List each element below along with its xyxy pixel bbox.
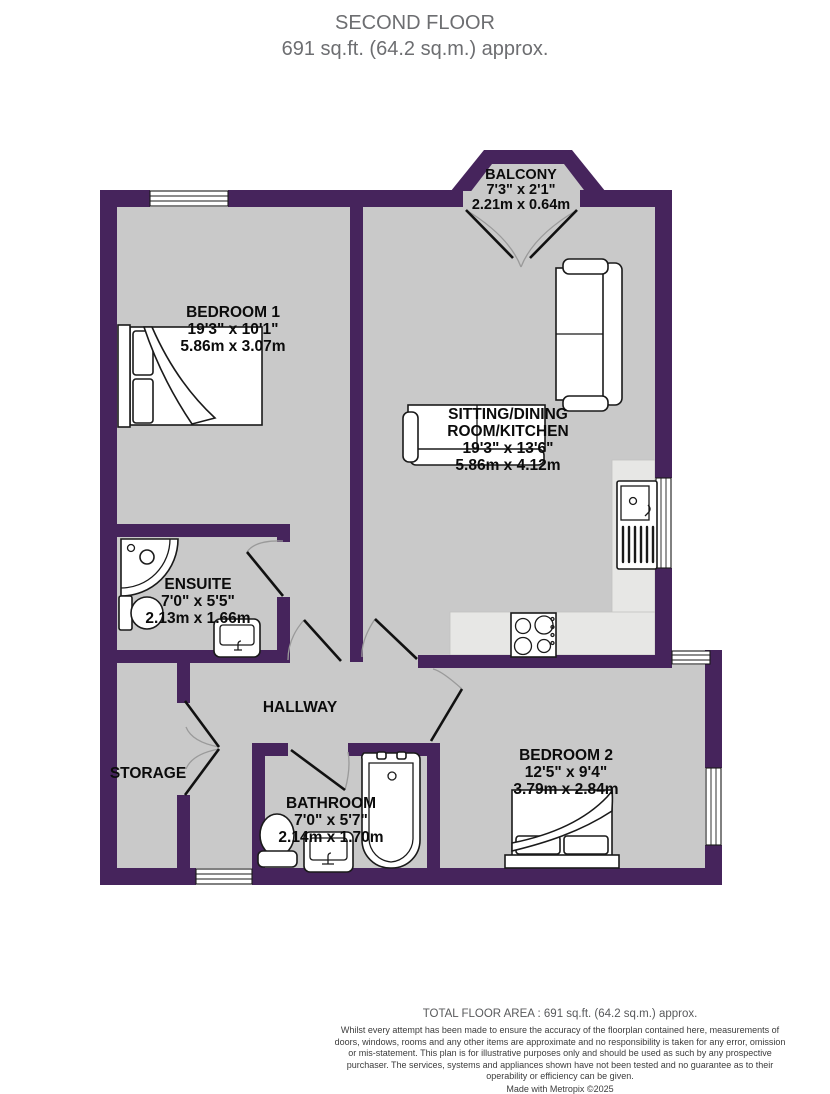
storage-label: STORAGE (110, 765, 186, 782)
hob-icon (511, 613, 556, 657)
ensuite-name: ENSUITE (164, 576, 231, 593)
bedroom1-name: BEDROOM 1 (186, 304, 280, 321)
ensuite-metric: 2.13m x 1.66m (145, 610, 250, 627)
balcony-imperial: 7'3" x 2'1" (486, 182, 555, 198)
bedroom1-metric: 5.86m x 3.07m (180, 338, 285, 355)
sofa-vertical-icon (556, 259, 622, 411)
balcony-label: BALCONY 7'3" x 2'1" 2.21m x 0.64m (472, 167, 570, 213)
footer: TOTAL FLOOR AREA : 691 sq.ft. (64.2 sq.m… (330, 1008, 790, 1094)
disclaimer-text: Whilst every attempt has been made to en… (330, 1025, 790, 1083)
ensuite-imperial: 7'0" x 5'5" (161, 593, 235, 610)
bedroom2-name: BEDROOM 2 (519, 747, 613, 764)
window-bedroom2-top (672, 651, 710, 664)
hallway-name: HALLWAY (263, 699, 338, 716)
bathroom-metric: 2.14m x 1.70m (278, 829, 383, 846)
window-bedroom1-top (150, 191, 228, 206)
window-bedroom2-right (706, 768, 721, 845)
window-kitchen-right (656, 478, 671, 568)
bathroom-imperial: 7'0" x 5'7" (294, 812, 368, 829)
sitting-name-line1: SITTING/DINING (448, 406, 568, 423)
metropix-credit: Made with Metropix ©2025 (330, 1084, 790, 1094)
sitting-imperial: 19'3" x 13'6" (462, 440, 553, 457)
bedroom2-metric: 3.79m x 2.84m (513, 781, 618, 798)
bedroom1-label: BEDROOM 1 19'3" x 10'1" 5.86m x 3.07m (180, 304, 285, 355)
balcony-metric: 2.21m x 0.64m (472, 197, 570, 213)
bedroom1-imperial: 19'3" x 10'1" (187, 321, 278, 338)
storage-name: STORAGE (110, 765, 186, 782)
total-floor-area: TOTAL FLOOR AREA : 691 sq.ft. (64.2 sq.m… (330, 1008, 790, 1020)
bedroom2-label: BEDROOM 2 12'5" x 9'4" 3.79m x 2.84m (513, 747, 618, 798)
hallway-label: HALLWAY (263, 699, 338, 716)
bedroom2-imperial: 12'5" x 9'4" (525, 764, 607, 781)
sitting-name-line2: ROOM/KITCHEN (447, 423, 568, 440)
kitchen-sink-icon (617, 481, 657, 569)
bed2-icon (505, 790, 619, 868)
floorplan: BALCONY 7'3" x 2'1" 2.21m x 0.64m BEDROO… (0, 0, 830, 1080)
window-bottom (196, 869, 252, 884)
bathroom-name: BATHROOM (286, 795, 376, 812)
balcony-name: BALCONY (485, 167, 557, 183)
sitting-metric: 5.86m x 4.12m (455, 457, 560, 474)
bathroom-label: BATHROOM 7'0" x 5'7" 2.14m x 1.70m (278, 795, 383, 846)
sitting-room-label: SITTING/DINING ROOM/KITCHEN 19'3" x 13'6… (447, 406, 568, 474)
